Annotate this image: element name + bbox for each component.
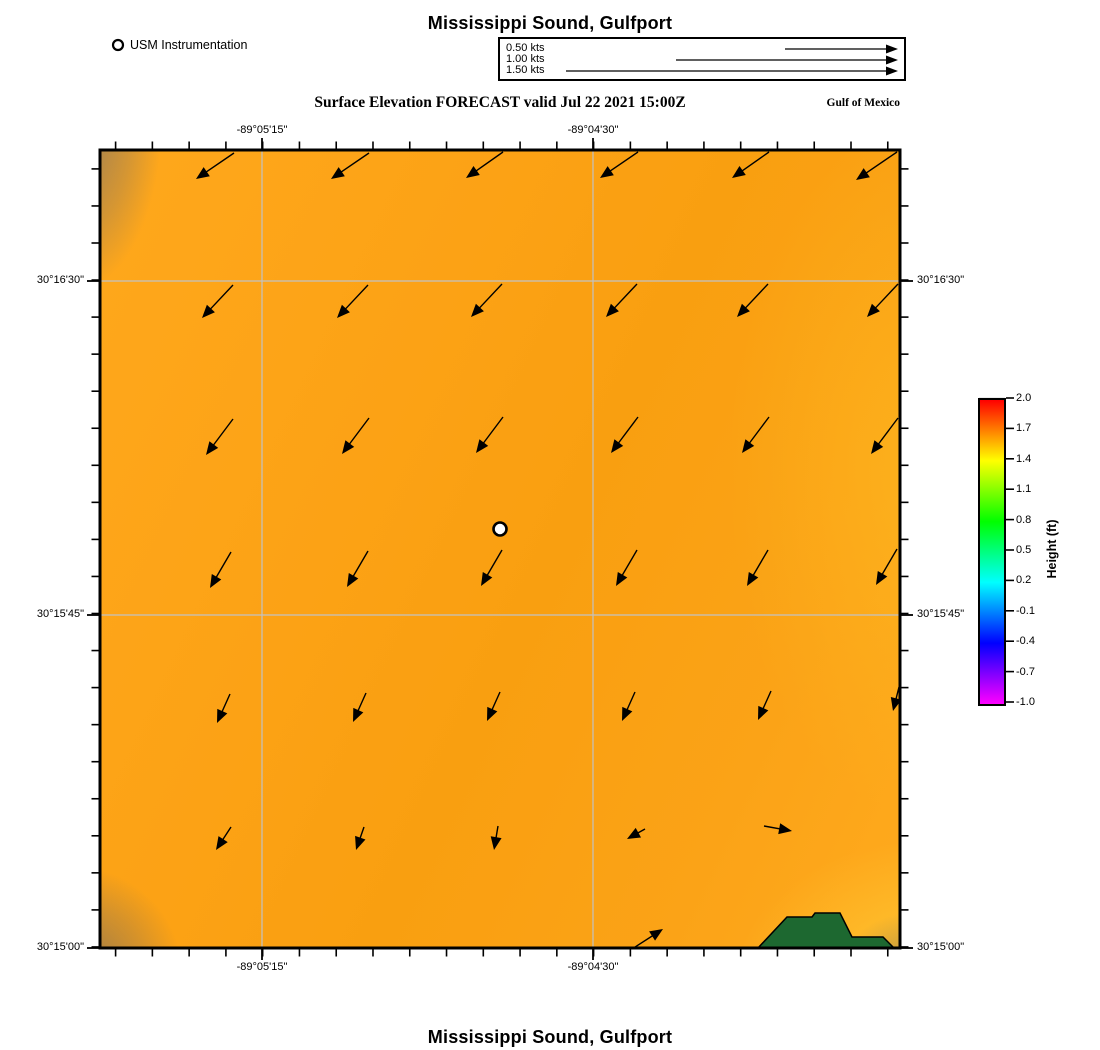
x-axis-tick-label-bottom: -89°04'30": [533, 961, 653, 974]
station-marker: [494, 523, 507, 536]
y-axis-tick-label-left: 30°16'30": [0, 274, 84, 287]
land-polygon: [758, 913, 894, 948]
colorbar-tick-label: 1.7: [1016, 422, 1031, 434]
map-overlay-svg: [0, 0, 1100, 1050]
colorbar-tick-label: -1.0: [1016, 696, 1035, 708]
colorbar-tick-label: 0.5: [1016, 544, 1031, 556]
colorbar-tick-label: -0.1: [1016, 605, 1035, 617]
y-axis-tick-label-right: 30°15'45": [917, 608, 1001, 621]
colorbar-tick-label: -0.4: [1016, 635, 1035, 647]
y-axis-tick-label-left: 30°15'45": [0, 608, 84, 621]
colorbar-tick-label: -0.7: [1016, 666, 1035, 678]
colorbar-axis-label: Height (ft): [1045, 489, 1059, 609]
colorbar-tick-label: 0.8: [1016, 514, 1031, 526]
colorbar-tick-label: 2.0: [1016, 392, 1031, 404]
colorbar-tick-label: 0.2: [1016, 574, 1031, 586]
x-axis-tick-label-top: -89°04'30": [533, 124, 653, 137]
colorbar-tick-label: 1.1: [1016, 483, 1031, 495]
y-axis-tick-label-right: 30°16'30": [917, 274, 1001, 287]
x-axis-tick-label-bottom: -89°05'15": [202, 961, 322, 974]
current-arrows: [196, 152, 901, 949]
colorbar-tick-label: 1.4: [1016, 453, 1031, 465]
x-axis-tick-label-top: -89°05'15": [202, 124, 322, 137]
y-axis-tick-label-left: 30°15'00": [0, 941, 84, 954]
bottom-title: Mississippi Sound, Gulfport: [0, 1027, 1100, 1048]
y-axis-tick-label-right: 30°15'00": [917, 941, 1001, 954]
colorbar: [978, 398, 1006, 706]
